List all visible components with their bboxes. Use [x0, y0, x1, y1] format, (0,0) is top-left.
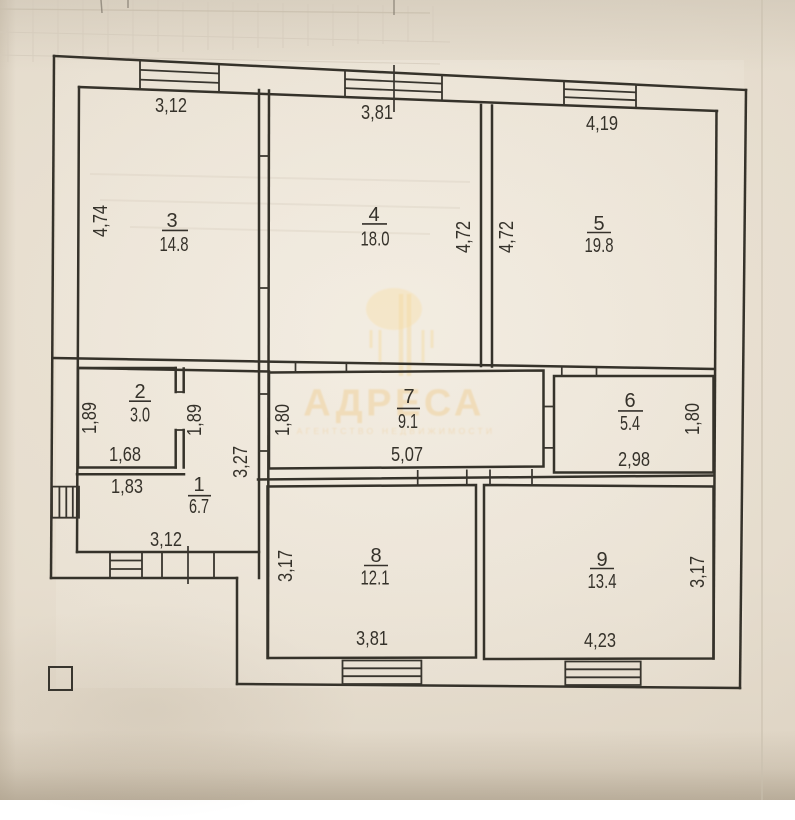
svg-text:18.0: 18.0: [361, 229, 390, 251]
svg-text:3,12: 3,12: [155, 95, 187, 117]
svg-text:3,12: 3,12: [150, 529, 182, 551]
svg-text:2,98: 2,98: [618, 449, 650, 471]
svg-text:3,27: 3,27: [230, 446, 252, 478]
svg-text:6.7: 6.7: [189, 496, 209, 518]
svg-text:1,89: 1,89: [184, 404, 206, 436]
svg-text:3: 3: [166, 210, 177, 232]
svg-text:2: 2: [134, 381, 145, 403]
svg-text:8: 8: [370, 545, 381, 567]
svg-text:1,68: 1,68: [109, 444, 141, 466]
svg-text:1,83: 1,83: [111, 476, 143, 498]
svg-text:14.8: 14.8: [160, 234, 189, 256]
svg-text:5.4: 5.4: [620, 413, 640, 435]
svg-text:4,72: 4,72: [453, 221, 475, 253]
svg-text:12.1: 12.1: [361, 568, 390, 590]
svg-text:13.4: 13.4: [588, 571, 617, 593]
svg-text:19.8: 19.8: [585, 235, 614, 257]
svg-text:3.0: 3.0: [130, 405, 150, 427]
svg-text:АГЕНТСТВО НЕДВИЖИМОСТИ: АГЕНТСТВО НЕДВИЖИМОСТИ: [297, 426, 496, 436]
svg-text:4,74: 4,74: [90, 205, 112, 237]
svg-text:1,89: 1,89: [79, 402, 101, 434]
svg-text:1,80: 1,80: [272, 404, 294, 436]
svg-text:4: 4: [368, 204, 379, 226]
svg-text:4,72: 4,72: [496, 221, 518, 253]
svg-text:4,23: 4,23: [584, 630, 616, 652]
svg-text:1,80: 1,80: [682, 403, 704, 435]
svg-text:5,07: 5,07: [391, 444, 423, 466]
svg-text:3,81: 3,81: [361, 102, 393, 124]
svg-text:6: 6: [624, 390, 635, 412]
svg-text:1: 1: [193, 474, 204, 496]
svg-text:7: 7: [403, 386, 414, 408]
svg-text:3,17: 3,17: [687, 556, 709, 588]
svg-text:4,19: 4,19: [586, 113, 618, 135]
svg-text:9.1: 9.1: [398, 411, 418, 433]
svg-text:3,17: 3,17: [275, 550, 297, 582]
svg-text:3,81: 3,81: [356, 628, 388, 650]
svg-text:АДРЕСА: АДРЕСА: [303, 383, 485, 425]
